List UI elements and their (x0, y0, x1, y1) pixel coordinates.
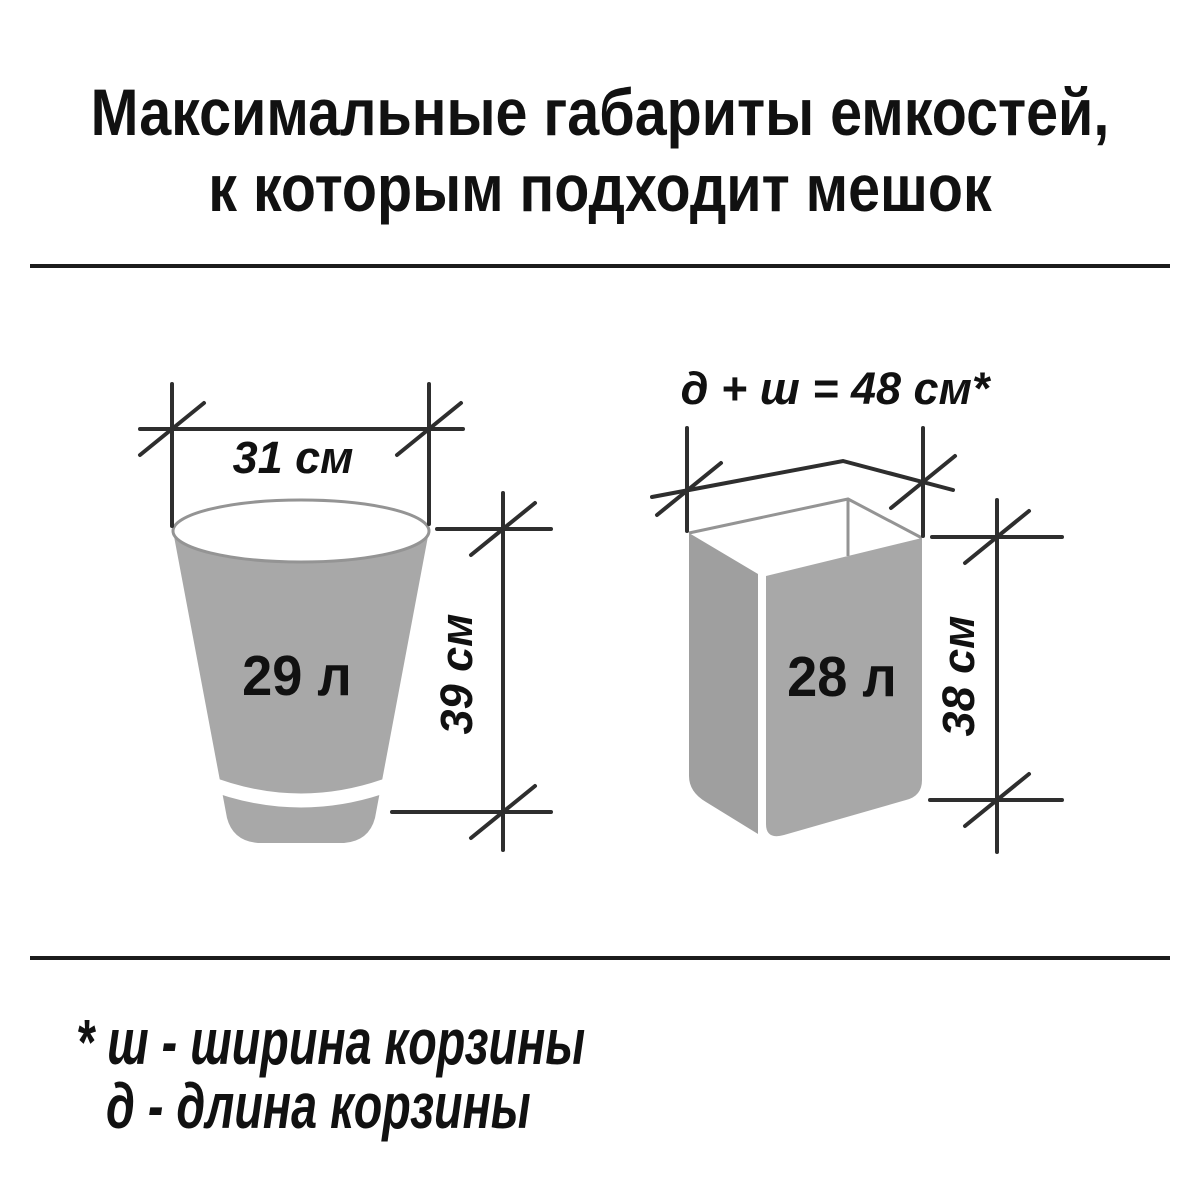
footnote-line-1: * ш - ширина корзины (76, 1010, 585, 1074)
top-dimension-line (652, 461, 953, 497)
bag-size-infographic: Максимальные габариты емкостей, к которы… (0, 0, 1200, 1200)
round-bin-width-label: 31 см (233, 432, 354, 484)
basket-left-face (689, 533, 758, 834)
basket-height-label: 38 см (933, 616, 985, 737)
round-bin-height-label: 39 см (431, 614, 483, 735)
round-bin-rim (173, 500, 429, 562)
basket-perimeter-label: д + ш = 48 см* (681, 363, 990, 415)
basket-volume-label: 28 л (787, 644, 897, 710)
round-bin-volume-label: 29 л (242, 643, 352, 709)
footnote-line-2: д - длина корзины (106, 1074, 531, 1138)
rect-basket-figure (652, 428, 1062, 852)
